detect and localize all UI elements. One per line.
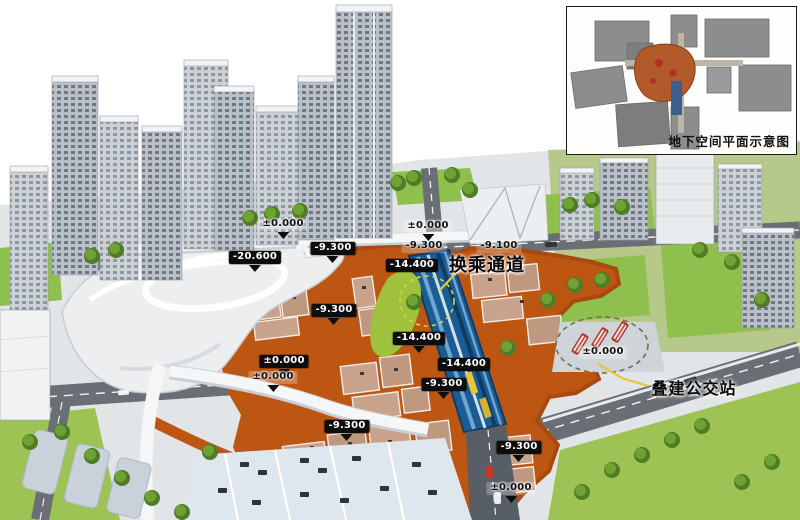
rendering-canvas: 地下空间平面示意图 -20.600 -9.300 -9.300 -9.100 ±… <box>0 0 800 520</box>
inset-plan-panel: 地下空间平面示意图 <box>566 6 797 155</box>
tower <box>10 166 48 310</box>
tower-tallest <box>336 5 392 238</box>
tower <box>142 126 182 280</box>
tower <box>600 158 648 240</box>
tower <box>742 228 794 328</box>
low-building <box>0 310 50 420</box>
tower <box>52 76 98 275</box>
inset-caption: 地下空间平面示意图 <box>668 131 790 150</box>
tower <box>656 148 714 244</box>
tower <box>256 106 298 245</box>
